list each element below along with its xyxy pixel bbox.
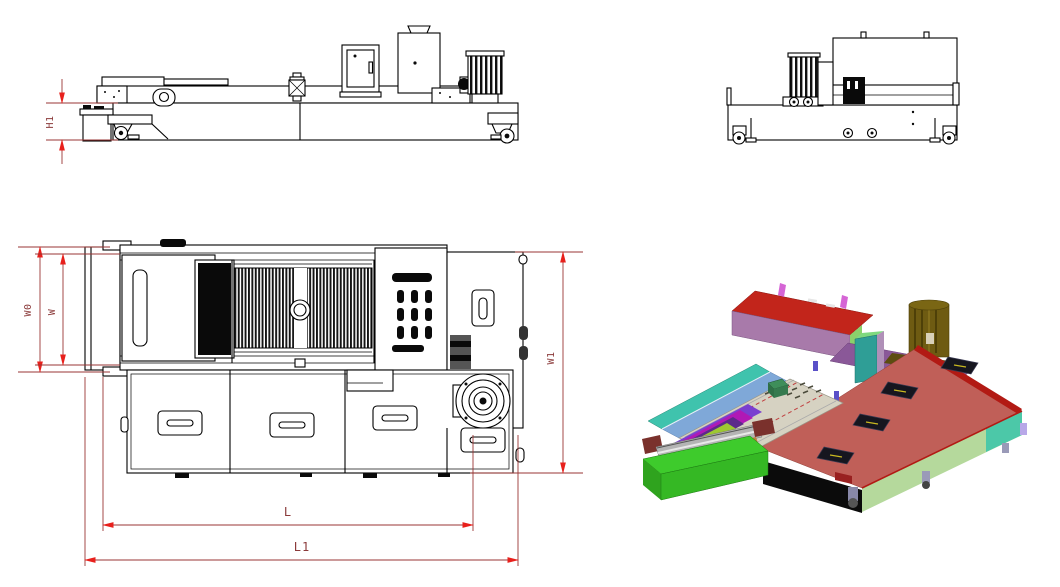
roller-mount xyxy=(153,89,175,106)
dim-label-l: L xyxy=(284,505,292,519)
lift-hook xyxy=(778,283,786,297)
access-handle xyxy=(373,406,417,430)
dim-label-w: W xyxy=(47,308,58,315)
lift-hook xyxy=(840,295,848,309)
render-caster xyxy=(1002,443,1009,453)
side-machine-body xyxy=(80,26,518,143)
plan-view: W0 W W1 L L1 xyxy=(10,235,610,575)
dim-label-w1: W1 xyxy=(546,351,557,364)
oil-tank xyxy=(398,26,440,93)
end-elevation-view xyxy=(715,20,975,155)
plan-machine xyxy=(85,239,528,478)
end-machine-body xyxy=(727,32,959,144)
deck-left-box xyxy=(97,86,127,103)
access-handle xyxy=(158,411,202,435)
motor-label xyxy=(926,333,934,344)
plan-belt-opening xyxy=(195,260,234,358)
plan-vent-panel xyxy=(375,248,447,372)
end-base-body xyxy=(728,105,957,140)
machine-base-body xyxy=(113,103,518,140)
access-handle xyxy=(270,413,314,437)
end-motor xyxy=(783,53,833,107)
side-elevation-view: H1 xyxy=(20,5,540,180)
technical-drawing-canvas: H1 xyxy=(0,0,1060,587)
dim-label-h1: H1 xyxy=(45,115,56,128)
plan-top-cap xyxy=(160,239,186,247)
electrical-cabinet xyxy=(340,45,381,97)
dim-label-l1: L1 xyxy=(294,540,310,554)
access-handle xyxy=(461,428,505,452)
isometric-3d-render xyxy=(630,275,1040,530)
plan-tank-section xyxy=(121,370,524,478)
dim-label-w0: W0 xyxy=(23,303,34,316)
